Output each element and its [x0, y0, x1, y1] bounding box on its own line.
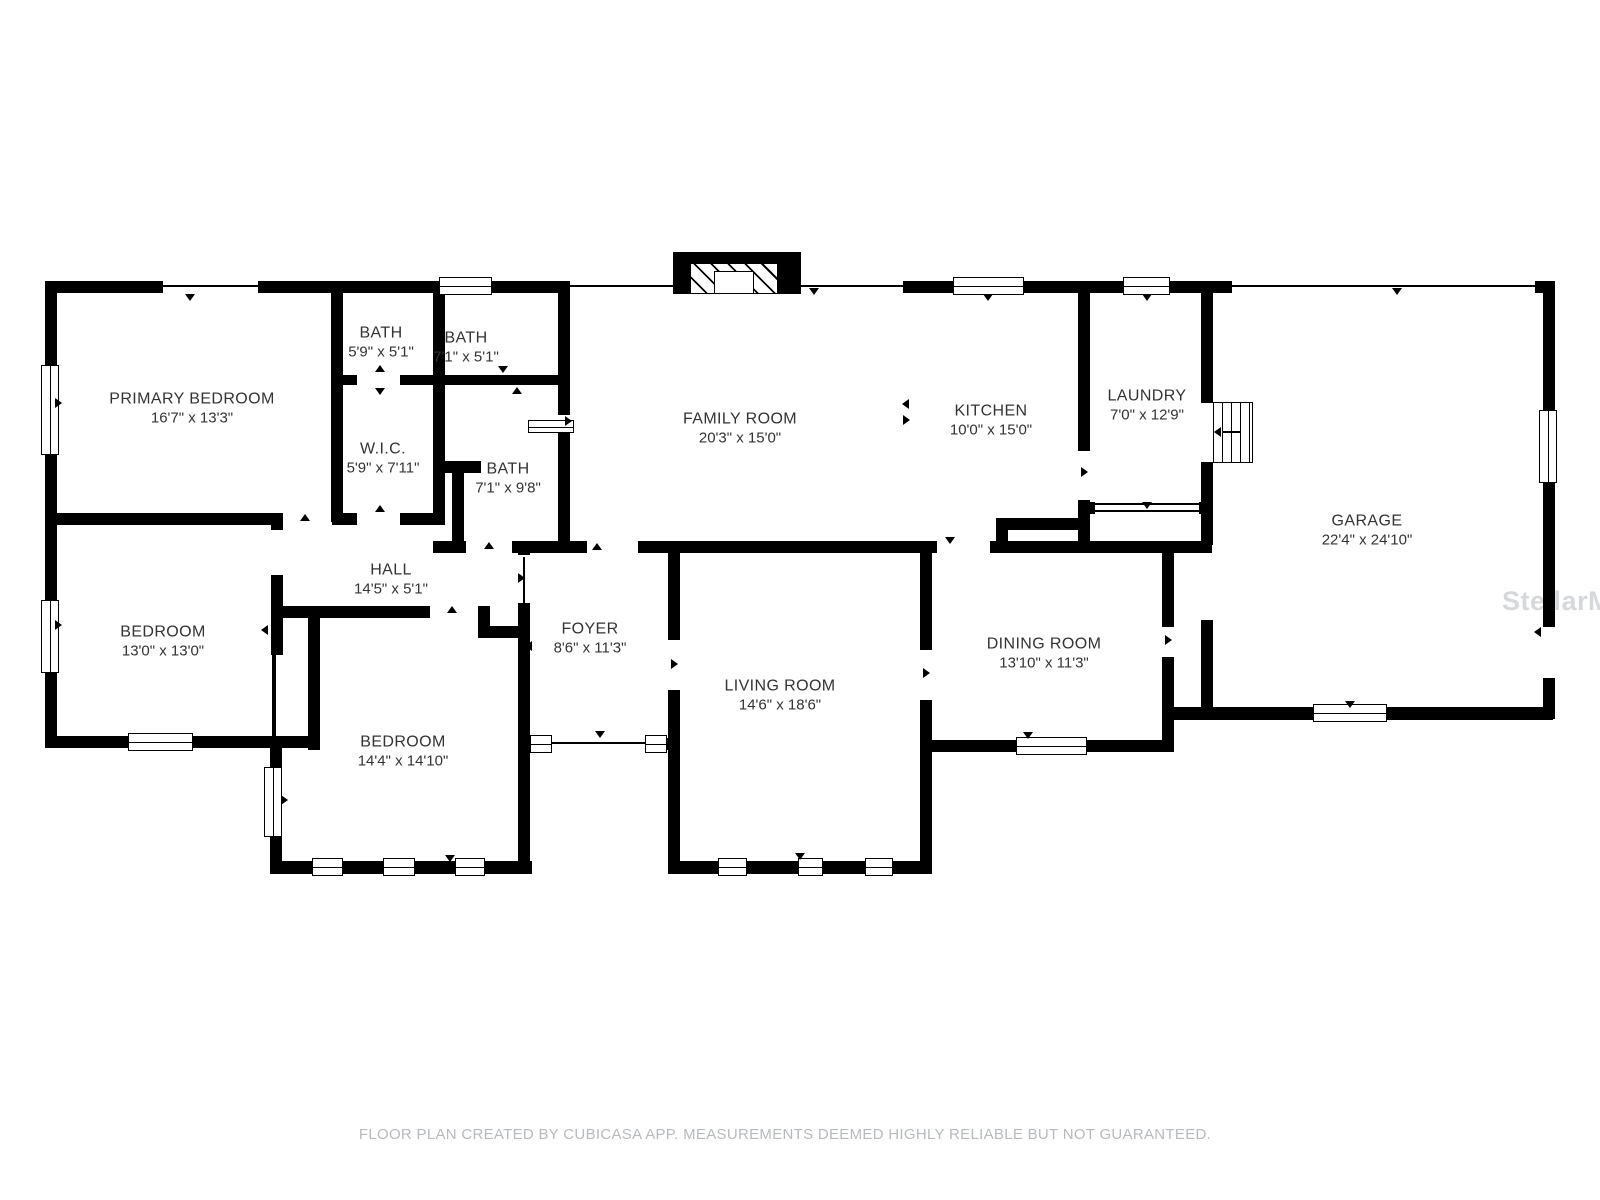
wall — [638, 541, 937, 553]
room-dimensions: 13'0" x 13'0" — [120, 643, 205, 662]
window — [865, 858, 893, 876]
wall — [920, 541, 932, 650]
room-name: BEDROOM — [358, 733, 449, 753]
opening-line — [1095, 510, 1199, 512]
wall — [1085, 541, 1212, 553]
wall — [331, 281, 343, 522]
door-marker — [185, 294, 195, 301]
door-marker — [1534, 627, 1541, 637]
window — [41, 365, 59, 455]
wall — [1087, 502, 1095, 514]
wall — [1024, 281, 1123, 293]
floor-plan: PRIMARY BEDROOM16'7" x 13'3"BATH5'9" x 5… — [0, 0, 1600, 1200]
room-name: BEDROOM — [120, 623, 205, 643]
room-name: GARAGE — [1322, 512, 1413, 532]
wall — [1162, 552, 1174, 627]
room-label-bath-2: BATH7'1" x 5'1" — [433, 329, 499, 368]
wall — [1162, 657, 1174, 752]
room-dimensions: 7'1" x 5'1" — [433, 349, 499, 368]
room-name: BATH — [433, 329, 499, 349]
wall — [668, 552, 680, 640]
room-label-bedroom-1: BEDROOM13'0" x 13'0" — [120, 623, 205, 662]
room-label-wic: W.I.C.5'9" x 7'11" — [347, 440, 420, 479]
door-marker — [903, 415, 910, 425]
wall — [668, 690, 680, 874]
door-marker — [1142, 502, 1152, 509]
wall — [518, 541, 530, 555]
room-label-family-room: FAMILY ROOM20'3" x 15'0" — [683, 410, 797, 449]
window — [1016, 737, 1087, 755]
room-name: BATH — [348, 324, 414, 344]
room-label-dining-room: DINING ROOM13'10" x 11'3" — [987, 635, 1102, 674]
wall — [1201, 620, 1213, 719]
wall — [996, 518, 1078, 530]
door-marker — [484, 542, 494, 549]
window — [718, 858, 747, 876]
room-dimensions: 5'9" x 5'1" — [348, 344, 414, 363]
room-dimensions: 8'6" x 11'3" — [554, 640, 627, 659]
room-name: W.I.C. — [347, 440, 420, 460]
wall — [400, 513, 433, 525]
wall — [903, 281, 953, 293]
room-name: FOYER — [554, 620, 627, 640]
wall — [433, 541, 466, 553]
door-marker — [565, 416, 572, 426]
wall — [400, 375, 570, 385]
door-marker — [281, 795, 288, 805]
sidelight-window — [530, 735, 552, 753]
wall — [45, 513, 282, 525]
wall — [452, 473, 464, 543]
room-label-bedroom-2: BEDROOM14'4" x 14'10" — [358, 733, 449, 772]
door-marker — [795, 853, 805, 860]
room-name: PRIMARY BEDROOM — [109, 390, 274, 410]
door-marker — [1392, 288, 1402, 295]
wall — [558, 428, 570, 543]
door-marker — [55, 398, 62, 408]
stairs-arrow-line — [1222, 431, 1240, 433]
wall — [331, 375, 357, 385]
room-label-hall: HALL14'5" x 5'1" — [354, 561, 428, 600]
door-marker — [261, 625, 268, 635]
front-door-line — [552, 742, 647, 744]
room-dimensions: 16'7" x 13'3" — [109, 410, 274, 429]
wall — [45, 281, 163, 293]
door-marker — [902, 399, 909, 409]
room-label-foyer: FOYER8'6" x 11'3" — [554, 620, 627, 659]
wall — [1201, 281, 1213, 403]
wall — [277, 606, 430, 618]
door-marker — [923, 668, 930, 678]
room-label-bath-3: BATH7'1" x 9'8" — [475, 460, 541, 499]
door-marker — [1023, 732, 1033, 739]
room-name: LIVING ROOM — [724, 677, 835, 697]
window — [798, 858, 823, 876]
wall — [996, 518, 1008, 553]
window — [41, 600, 59, 673]
wall — [433, 385, 445, 525]
window — [128, 733, 193, 751]
door-marker — [447, 606, 457, 613]
window — [953, 277, 1024, 295]
window-line — [163, 285, 258, 287]
window — [264, 767, 282, 837]
room-name: LAUNDRY — [1108, 387, 1187, 407]
room-label-kitchen: KITCHEN10'0" x 15'0" — [950, 402, 1032, 441]
window-line — [1232, 285, 1535, 287]
window-line — [801, 285, 903, 287]
door-marker — [595, 731, 605, 738]
room-dimensions: 14'5" x 5'1" — [354, 581, 428, 600]
wall — [1078, 281, 1090, 451]
closet-door-line — [272, 655, 276, 736]
room-name: KITCHEN — [950, 402, 1032, 422]
room-dimensions: 10'0" x 15'0" — [950, 422, 1032, 441]
door-marker — [525, 641, 532, 651]
door-marker — [518, 573, 525, 583]
room-dimensions: 7'1" x 9'8" — [475, 480, 541, 499]
room-name: BATH — [475, 460, 541, 480]
room-label-laundry: LAUNDRY7'0" x 12'9" — [1108, 387, 1187, 426]
wall — [271, 513, 283, 530]
wall — [271, 575, 283, 655]
wall — [332, 513, 357, 525]
door-marker — [436, 418, 443, 428]
door-marker — [671, 659, 678, 669]
room-name: FAMILY ROOM — [683, 410, 797, 430]
window — [439, 277, 492, 295]
door-marker — [1142, 294, 1152, 301]
wall — [258, 281, 439, 293]
door-marker — [512, 387, 522, 394]
door-marker — [300, 514, 310, 521]
wall — [1543, 281, 1555, 410]
room-dimensions: 13'10" x 11'3" — [987, 655, 1102, 674]
door-marker — [375, 505, 385, 512]
room-dimensions: 22'4" x 24'10" — [1322, 532, 1413, 551]
window-line — [570, 285, 673, 287]
wall — [920, 700, 932, 874]
sidelight-window — [645, 735, 667, 753]
wall — [1201, 462, 1213, 545]
room-dimensions: 5'9" x 7'11" — [347, 460, 420, 479]
door-marker — [55, 620, 62, 630]
room-dimensions: 14'6" x 18'6" — [724, 697, 835, 716]
window — [1123, 277, 1170, 295]
room-label-garage: GARAGE22'4" x 24'10" — [1322, 512, 1413, 551]
door-marker — [498, 366, 508, 373]
door-marker — [375, 365, 385, 372]
room-dimensions: 14'4" x 14'10" — [358, 753, 449, 772]
disclaimer-text: FLOOR PLAN CREATED BY CUBICASA APP. MEAS… — [0, 1126, 1570, 1143]
room-name: HALL — [354, 561, 428, 581]
door-marker — [1345, 701, 1355, 708]
door-marker — [1165, 635, 1172, 645]
room-label-bath-1: BATH5'9" x 5'1" — [348, 324, 414, 363]
window — [383, 858, 415, 876]
stairs-arrow — [1214, 427, 1221, 437]
door-marker — [983, 294, 993, 301]
window — [1539, 410, 1557, 483]
fireplace-firebox — [714, 271, 754, 294]
door-marker — [809, 288, 819, 295]
window — [455, 858, 485, 876]
wall — [1543, 483, 1555, 627]
door-marker — [375, 388, 385, 395]
door-marker — [592, 543, 602, 550]
door-marker — [945, 537, 955, 544]
room-name: DINING ROOM — [987, 635, 1102, 655]
room-label-living-room: LIVING ROOM14'6" x 18'6" — [724, 677, 835, 716]
room-dimensions: 20'3" x 15'0" — [683, 430, 797, 449]
door-marker — [313, 632, 320, 642]
room-label-primary-bedroom: PRIMARY BEDROOM16'7" x 13'3" — [109, 390, 274, 429]
door-marker — [445, 855, 455, 862]
door-marker — [1081, 467, 1088, 477]
room-dimensions: 7'0" x 12'9" — [1108, 407, 1187, 426]
wall — [433, 461, 481, 473]
wall — [558, 281, 570, 415]
window — [312, 858, 343, 876]
